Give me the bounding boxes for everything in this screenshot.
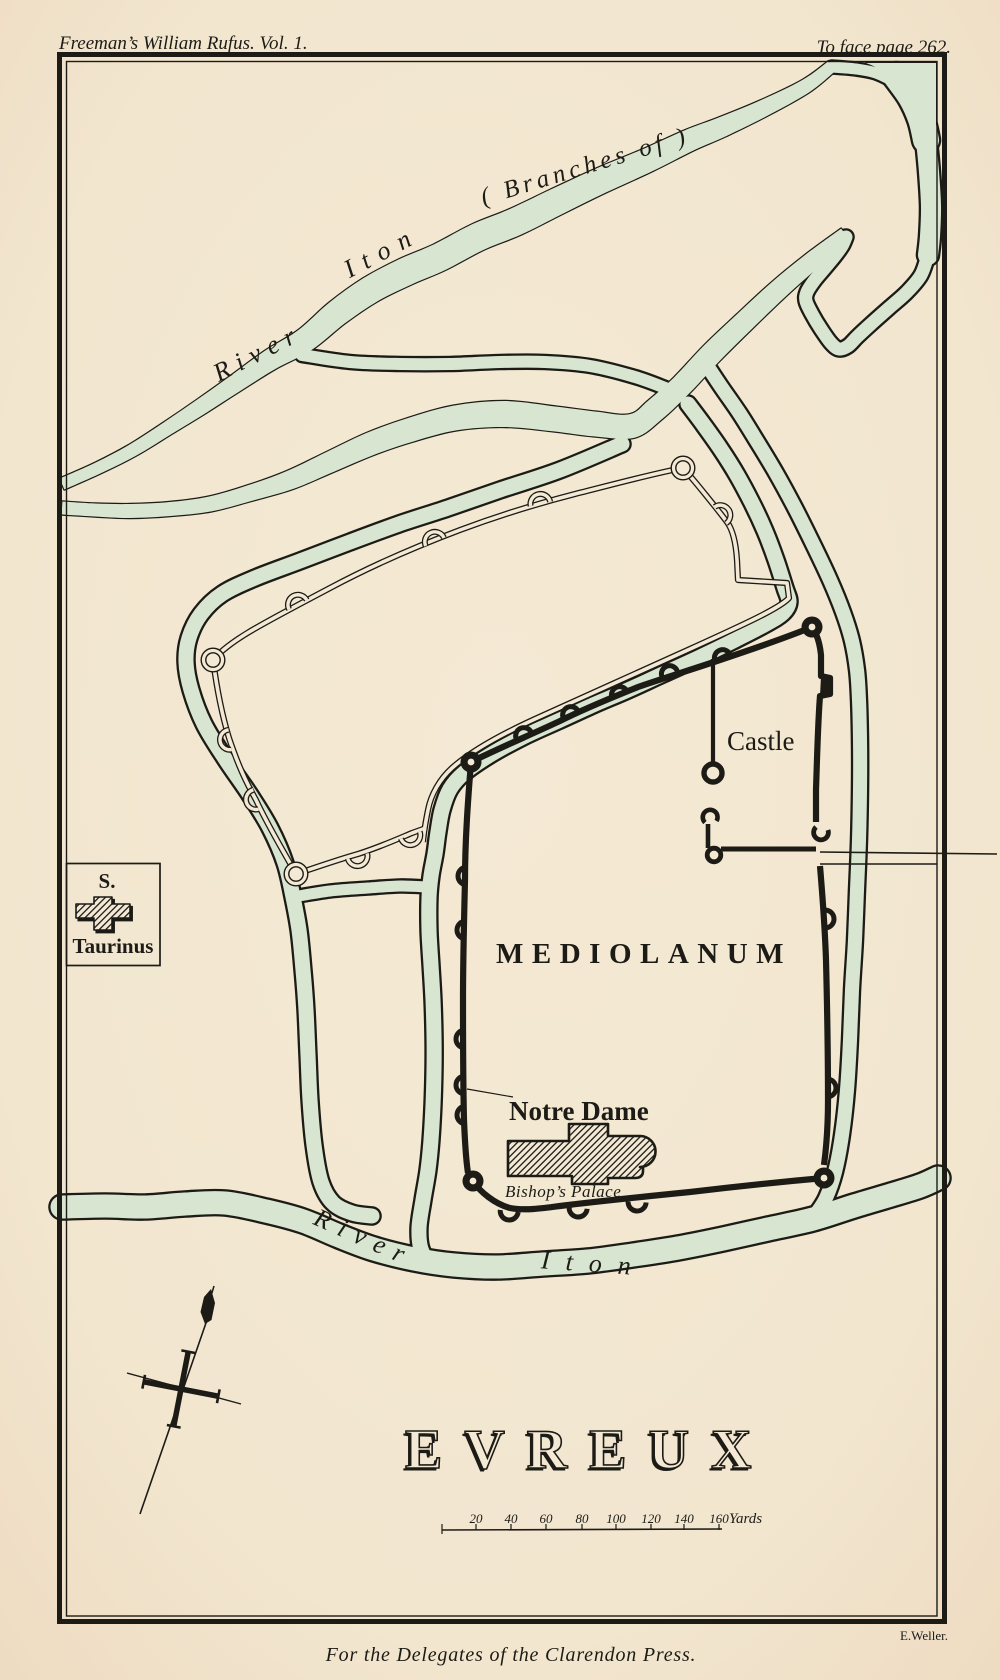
svg-text:Castle: Castle: [727, 726, 795, 756]
svg-text:EVREUX: EVREUX: [405, 1419, 773, 1481]
svg-text:20: 20: [470, 1511, 484, 1526]
svg-text:Notre Dame: Notre Dame: [509, 1096, 649, 1126]
svg-text:S.: S.: [99, 869, 116, 893]
svg-text:MEDIOLANUM: MEDIOLANUM: [496, 938, 792, 970]
svg-text:E.Weller.: E.Weller.: [900, 1628, 948, 1643]
svg-text:Freeman’s William Rufus. Vol.: Freeman’s William Rufus. Vol. 1.: [58, 33, 308, 54]
svg-text:For the Delegates of the Clare: For the Delegates of the Clarendon Press…: [325, 1644, 697, 1666]
svg-text:60: 60: [540, 1511, 554, 1526]
svg-text:120: 120: [641, 1511, 661, 1526]
svg-text:100: 100: [606, 1511, 626, 1526]
svg-text:Yards: Yards: [729, 1511, 762, 1527]
svg-text:140: 140: [674, 1511, 694, 1526]
svg-text:80: 80: [576, 1511, 590, 1526]
svg-text:To face page 262.: To face page 262.: [817, 37, 951, 58]
svg-text:Taurinus: Taurinus: [73, 934, 154, 958]
svg-text:40: 40: [505, 1511, 519, 1526]
svg-text:160: 160: [709, 1511, 729, 1526]
svg-text:Bishop’s Palace: Bishop’s Palace: [505, 1182, 621, 1201]
